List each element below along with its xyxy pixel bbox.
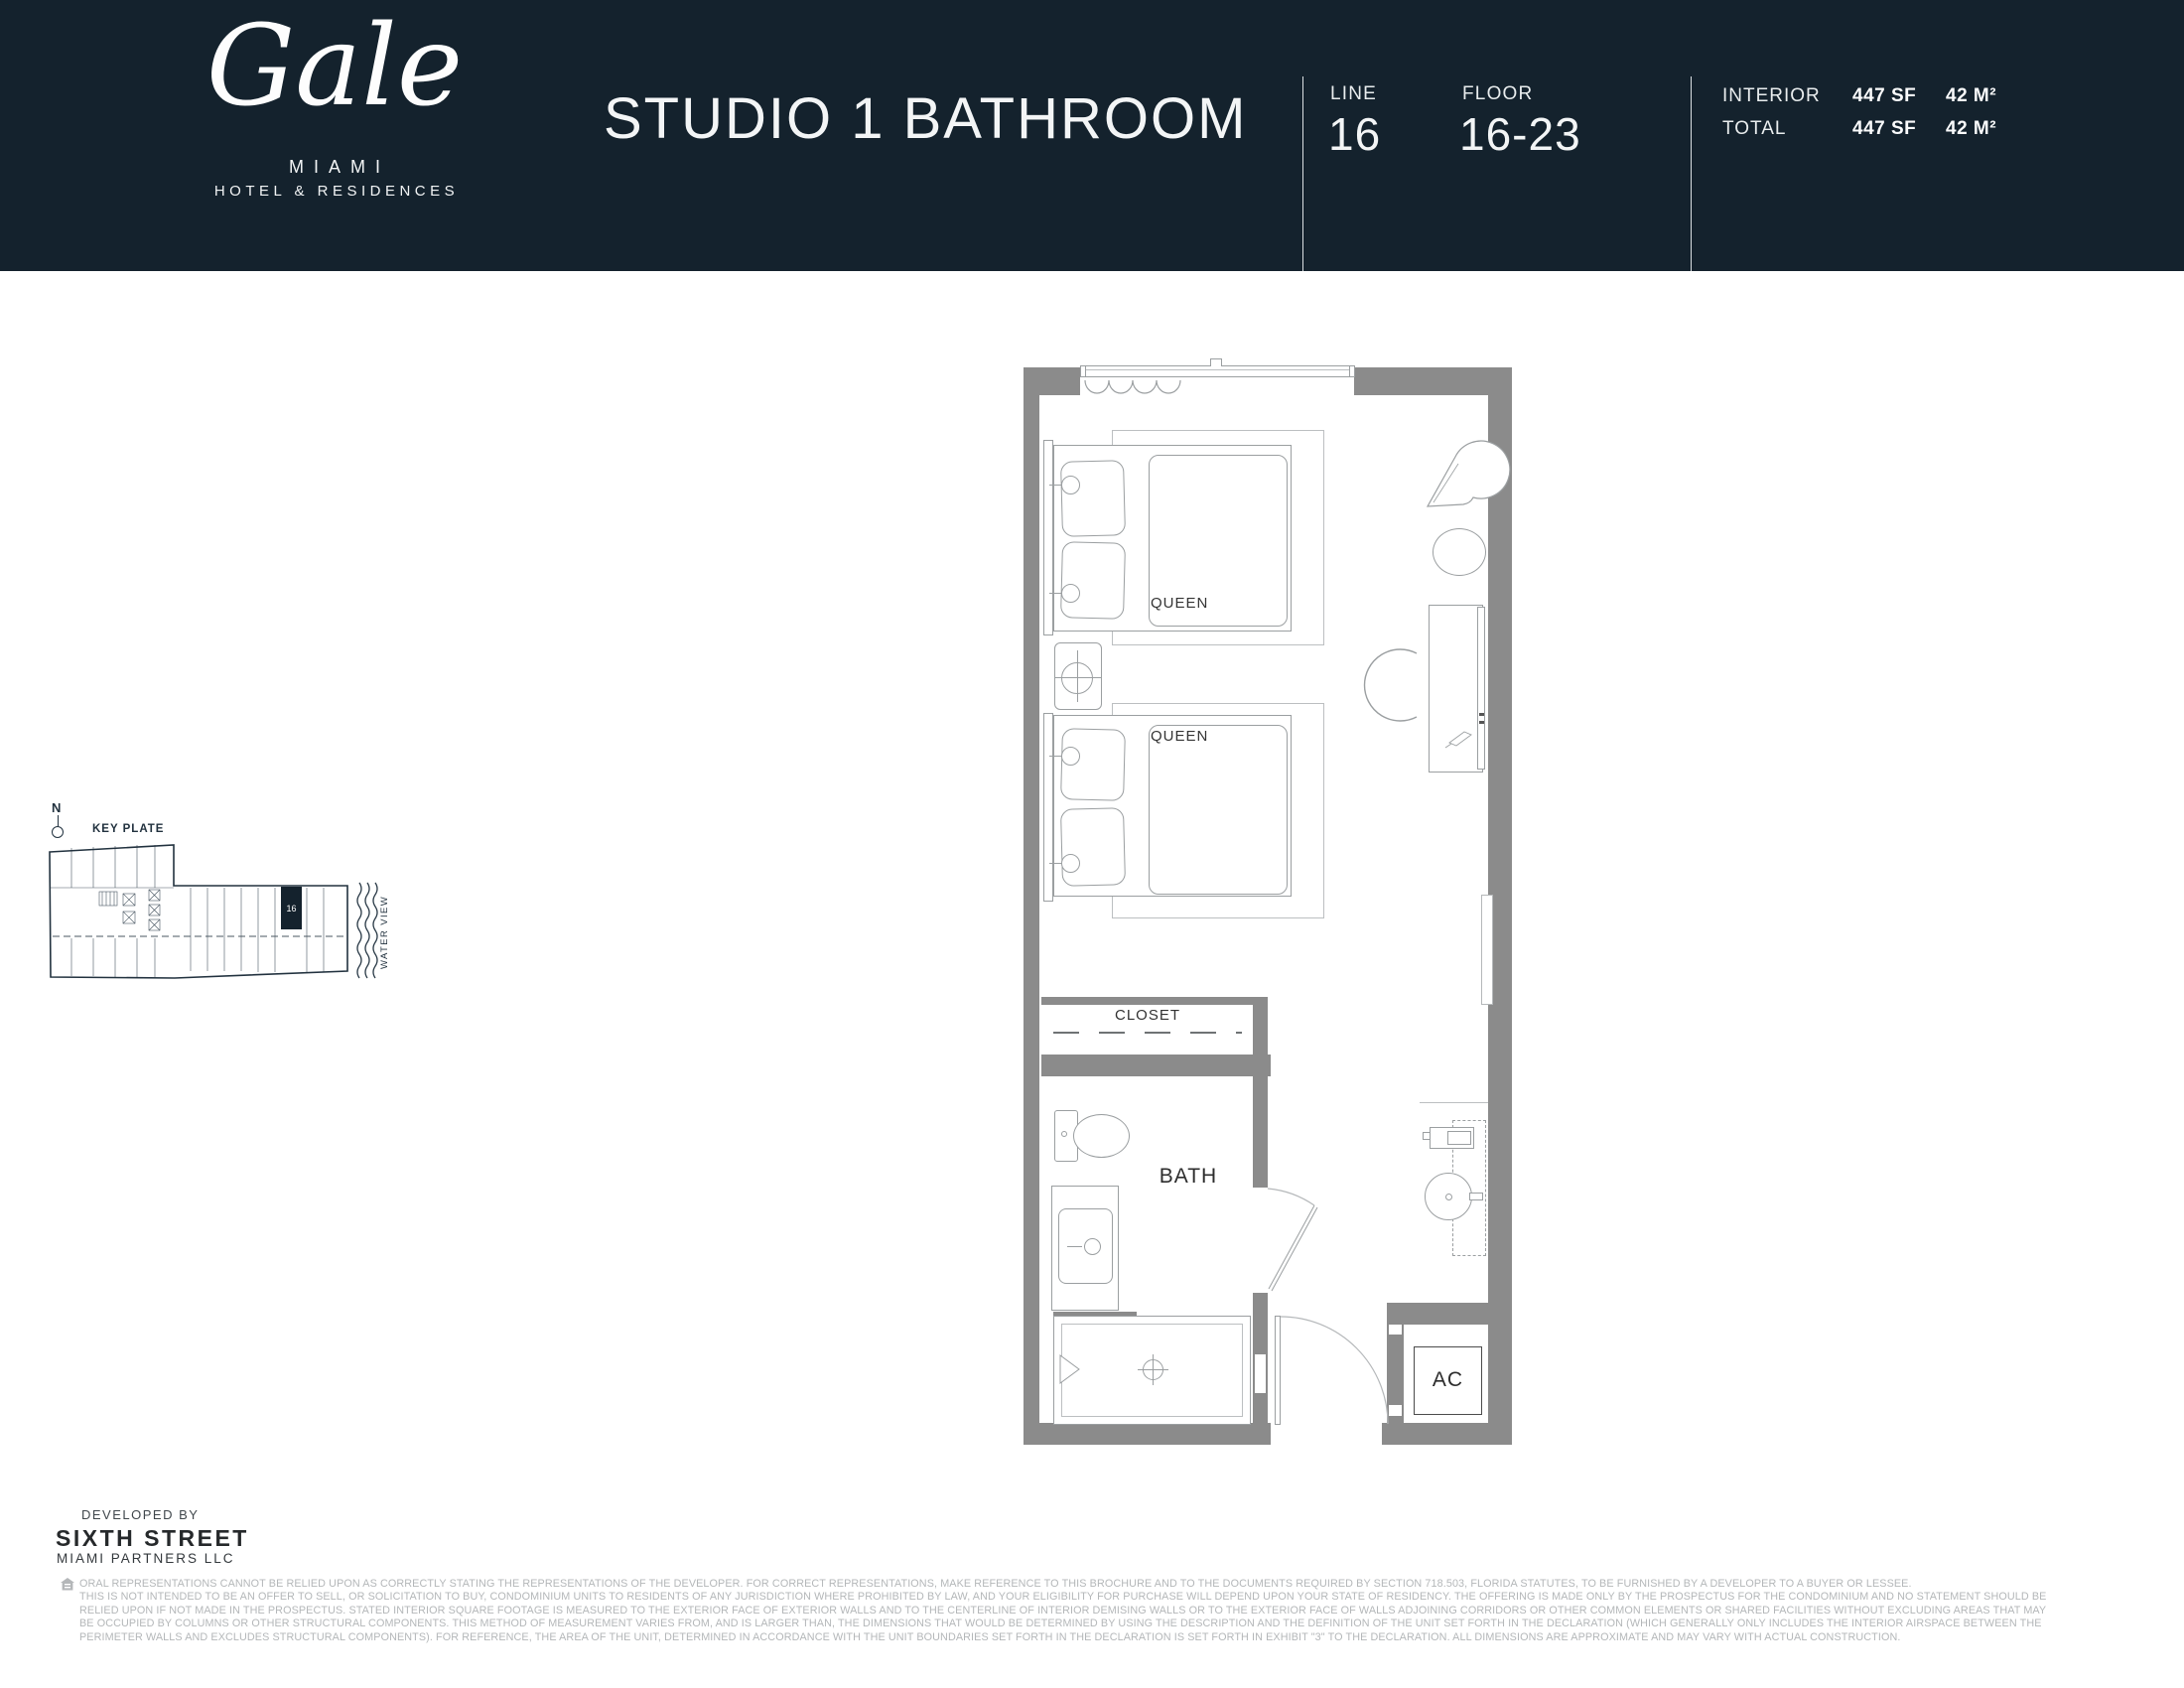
bed-2-label: QUEEN (1151, 728, 1230, 745)
sconce-light (1061, 476, 1080, 494)
window (1080, 365, 1355, 377)
disclaimer-line: ORAL REPRESENTATIONS CANNOT BE RELIED UP… (79, 1578, 2046, 1591)
closet-rod (1053, 1032, 1242, 1034)
north-arrow-icon: N (52, 800, 61, 815)
desk (1429, 605, 1483, 773)
interior-sf-value: 447 SF (1852, 85, 1916, 107)
header-divider (1691, 76, 1692, 271)
ac-label: AC (1414, 1368, 1482, 1392)
disclaimer-line: PERIMETER WALLS AND EXCLUDES STRUCTURAL … (79, 1631, 2046, 1644)
disclaimer-line: BE OCCUPIED BY COLUMNS OR OTHER STRUCTUR… (79, 1618, 2046, 1630)
wall-niche (1481, 895, 1493, 1005)
interior-label: INTERIOR (1722, 85, 1821, 107)
shower-glass-panel (1255, 1354, 1266, 1393)
faucet-icon (1469, 1193, 1483, 1200)
page-title: STUDIO 1 BATHROOM (604, 85, 1247, 152)
headboard (1043, 440, 1053, 635)
window-mullion (1210, 358, 1222, 366)
shower-drain-icon (1153, 1354, 1154, 1385)
mattress (1149, 725, 1288, 895)
window-cap (1349, 365, 1355, 377)
north-arrow-icon (52, 826, 64, 838)
side-table (1433, 528, 1486, 576)
key-plate-unit-number: 16 (286, 904, 296, 914)
header-divider (1302, 76, 1303, 271)
bath-label: BATH (1119, 1165, 1258, 1189)
water-waves-icon (355, 882, 379, 979)
gale-logo-script: Gale (156, 2, 513, 131)
disclaimer-line: THIS IS NOT INTENDED TO BE AN OFFER TO S… (79, 1591, 2046, 1604)
toilet-bowl (1073, 1114, 1130, 1158)
developer-name: SIXTH STREET (56, 1525, 249, 1552)
bed-1-label: QUEEN (1151, 595, 1230, 612)
wall-segment (1041, 1055, 1271, 1076)
wall-segment (1024, 367, 1039, 1445)
key-plate-building: 16 (48, 844, 349, 980)
total-m2-value: 42 M² (1946, 118, 1996, 140)
wall-faucet (1447, 1131, 1471, 1145)
total-label: TOTAL (1722, 118, 1786, 140)
line-label: LINE (1330, 83, 1377, 105)
wall-segment (1041, 997, 1268, 1005)
line-value: 16 (1328, 107, 1381, 161)
sconce-light (1061, 584, 1080, 603)
total-sf-value: 447 SF (1852, 118, 1916, 140)
pillow (1060, 541, 1126, 620)
window-cap (1080, 365, 1086, 377)
closet-label: CLOSET (1053, 1007, 1242, 1024)
gale-logo: Gale MIAMI HOTEL & RESIDENCES (156, 0, 513, 271)
interior-m2-value: 42 M² (1946, 85, 1996, 107)
sconce-light (1061, 854, 1080, 873)
wall-faucet (1423, 1132, 1431, 1140)
headboard (1043, 713, 1053, 902)
header-bar: Gale MIAMI HOTEL & RESIDENCES STUDIO 1 B… (0, 0, 2184, 271)
floor-label: FLOOR (1462, 83, 1533, 105)
table-lamp (1061, 662, 1093, 694)
desk-detail (1479, 713, 1484, 716)
pillow (1060, 460, 1126, 537)
equal-housing-icon (61, 1578, 74, 1591)
sconce-light (1061, 747, 1080, 766)
entry-door-leaf (1275, 1316, 1281, 1425)
vanity-drain (1084, 1238, 1101, 1255)
gale-logo-tagline: HOTEL & RESIDENCES (156, 183, 513, 200)
floor-plan: QUEEN QUEEN CLOSET BATH (1024, 365, 1514, 1445)
vessel-sink-drain (1445, 1194, 1452, 1200)
desk-ledge (1477, 607, 1485, 770)
wall-segment (1024, 1423, 1271, 1445)
door-jamb (1389, 1325, 1402, 1335)
window-glass-line (1081, 369, 1354, 370)
developed-by-label: DEVELOPED BY (81, 1507, 199, 1522)
nook-edge (1420, 1102, 1488, 1103)
faucet-icon (1067, 1246, 1082, 1247)
key-plate-title: KEY PLATE (92, 823, 164, 835)
pillow (1060, 807, 1126, 887)
door-jamb (1389, 1405, 1402, 1416)
floor-value: 16-23 (1459, 107, 1581, 161)
developer-subtitle: MIAMI PARTNERS LLC (57, 1551, 235, 1566)
disclaimer-line: RELIED UPON IF NOT MADE IN THE PROSPECTU… (79, 1605, 2046, 1618)
water-view-label: WATER VIEW (379, 878, 390, 969)
brochure-page: Gale MIAMI HOTEL & RESIDENCES STUDIO 1 B… (0, 0, 2184, 1688)
gale-logo-city: MIAMI (156, 157, 513, 178)
desk-detail (1479, 721, 1484, 724)
north-arrow-icon (58, 815, 59, 826)
toilet-button (1061, 1131, 1067, 1137)
